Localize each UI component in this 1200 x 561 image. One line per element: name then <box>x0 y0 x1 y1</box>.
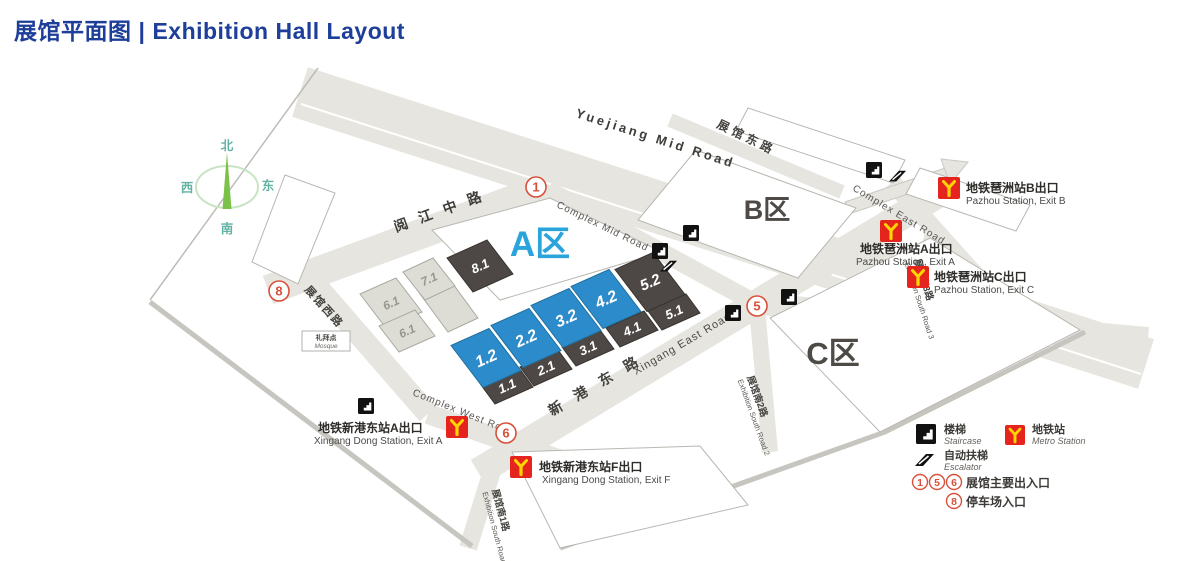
entrance-marker-6: 6 <box>496 423 516 443</box>
area-label-c: C区 <box>806 336 859 371</box>
legend-escalator-zh: 自动扶梯 <box>944 448 988 462</box>
area-label-b: B区 <box>744 195 791 225</box>
station-label-zh: 地铁琶洲站C出口 <box>934 269 1027 284</box>
legend-staircase-icon <box>916 424 936 444</box>
entrance-number: 8 <box>275 284 282 299</box>
station-label-zh: 地铁琶洲站B出口 <box>966 180 1059 195</box>
station-label-zh: 地铁新港东站F出口 <box>539 459 642 474</box>
metro-station-icon <box>938 177 960 199</box>
staircase-icon <box>652 243 668 259</box>
legend-entrance-num-6: 6 <box>951 477 957 489</box>
legend-parking-num: 8 <box>951 496 957 508</box>
legend-entrance-num-5: 5 <box>934 477 940 489</box>
staircase-icon <box>725 305 741 321</box>
station-label-en: Pazhou Station, Exit B <box>966 196 1066 207</box>
legend-main-entrance-label: 展馆主要出入口 <box>966 475 1050 490</box>
legend-escalator-icon <box>915 454 934 466</box>
entrance-marker-8: 8 <box>269 281 289 301</box>
station-label-en: Xingang Dong Station, Exit A <box>314 436 443 447</box>
legend-entrance-num-1: 1 <box>917 477 923 489</box>
legend-metro-zh: 地铁站 <box>1032 422 1065 436</box>
compass-needle-icon <box>223 152 232 209</box>
metro-station-icon <box>510 456 532 478</box>
legend-staircase-zh: 楼梯 <box>944 422 966 436</box>
metro-station-icon <box>880 220 902 242</box>
station-label-en: Pazhou Station, Exit C <box>934 285 1034 296</box>
mosque-label-zh: 礼拜点 <box>316 333 337 342</box>
legend-metro-en: Metro Station <box>1032 436 1086 446</box>
legend-main-entrances: 1 5 6 展馆主要出入口 <box>913 475 1051 491</box>
area-label-a: A区 <box>510 225 570 264</box>
entrance-marker-5: 5 <box>747 296 767 316</box>
entrance-number: 1 <box>532 180 539 195</box>
legend-metro-icon <box>1005 425 1025 445</box>
entrance-number: 6 <box>502 426 509 441</box>
compass: 北 南 西 东 <box>181 138 275 236</box>
mosque-label-en: Mosque <box>314 343 338 350</box>
compass-west: 西 <box>181 181 194 195</box>
station-label-zh: 地铁琶洲站A出口 <box>860 241 953 256</box>
exhibition-map-page: 展馆平面图|Exhibition Hall Layout <box>0 0 1200 561</box>
legend-parking-label: 停车场入口 <box>966 494 1026 509</box>
station-label-en: Xingang Dong Station, Exit F <box>542 475 670 486</box>
staircase-icon <box>358 398 374 414</box>
compass-south: 南 <box>221 221 234 236</box>
staircase-icon <box>781 289 797 305</box>
road-label-south: 展馆南1路Exhibition South Road 1 <box>480 488 521 561</box>
legend-escalator-en: Escalator <box>944 462 983 472</box>
metro-station-icon <box>446 416 468 438</box>
metro-station-icon <box>907 266 929 288</box>
compass-east: 东 <box>262 178 275 193</box>
legend-parking: 8 停车场入口 <box>947 494 1027 510</box>
staircase-icon <box>866 162 882 178</box>
staircase-icon <box>683 225 699 241</box>
station-label-zh: 地铁新港东站A出口 <box>318 420 423 435</box>
compass-north: 北 <box>221 138 234 153</box>
station-label-en: Pazhou Station, Exit A <box>856 257 955 268</box>
legend: 楼梯 Staircase 地铁站 Metro Station 自动扶梯 Esca… <box>913 422 1086 509</box>
entrance-marker-1: 1 <box>526 177 546 197</box>
legend-staircase-en: Staircase <box>944 436 982 446</box>
exhibition-map: 1.12.13.14.15.18.17.16.16.11.22.23.24.25… <box>0 0 1200 561</box>
mosque-poi: 礼拜点 Mosque <box>302 331 350 351</box>
entrance-number: 5 <box>753 299 760 314</box>
